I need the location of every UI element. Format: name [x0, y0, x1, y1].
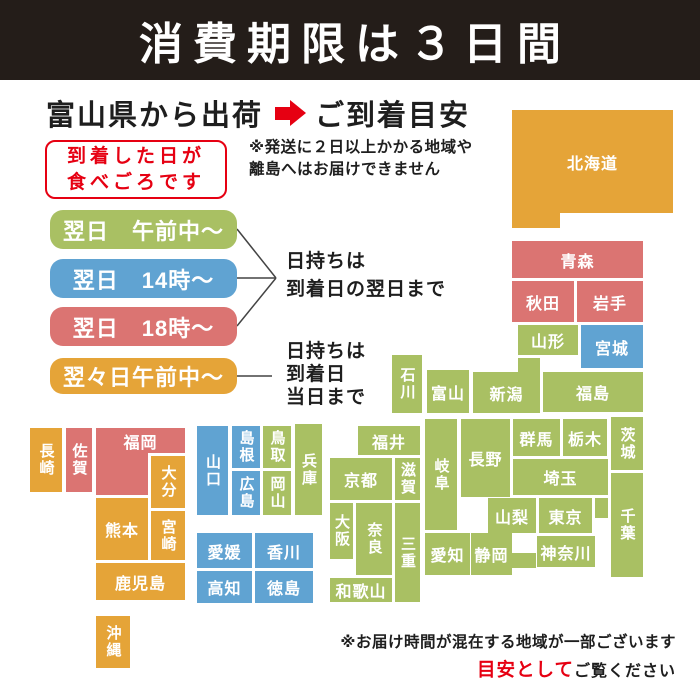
map-pref-niigata: 新潟 [473, 372, 540, 413]
map-pref-label: 愛知 [430, 542, 464, 566]
map-pref-label: 新潟 [489, 381, 523, 405]
map-pref-aichi: 愛知 [425, 533, 470, 575]
map-pref-label: 島根 [236, 430, 257, 464]
japan-map: 北海道青森秋田岩手山形宮城新潟福島富山石川福井岐阜長野群馬栃木茨城埼玉山梨東京千… [0, 0, 700, 700]
map-pref-label: 和歌山 [335, 578, 386, 602]
map-pref-label: 滋賀 [397, 462, 418, 496]
map-pref-hiroshima: 広島 [232, 471, 260, 515]
map-pref-iwate: 岩手 [577, 281, 643, 322]
map-pref-label: 石川 [397, 367, 418, 401]
map-pref-fukui: 福井 [358, 426, 420, 455]
map-pref-chiba: 千葉 [611, 473, 643, 577]
map-pref-miyazaki: 宮崎 [151, 511, 185, 560]
map-pref-kagawa: 香川 [255, 533, 313, 568]
map-pref-yamaguchi: 山口 [197, 426, 228, 515]
map-pref-label: 北海道 [567, 150, 618, 174]
map-pref-ishikawa: 石川 [392, 355, 422, 413]
map-pref-yamanashi: 山梨 [488, 498, 536, 533]
map-pref-shizuoka: 静岡 [471, 533, 512, 575]
map-pref-mie: 三重 [395, 503, 420, 602]
map-pref-label: 佐賀 [69, 443, 90, 477]
delivery-infographic: 消費期限は３日間 富山県から出荷 ご到着目安 到着した日が 食べごろです ※発送… [0, 0, 700, 700]
map-pref-hokkaido-tab [512, 211, 560, 228]
map-pref-label: 山梨 [495, 504, 529, 528]
map-pref-label: 富山 [431, 380, 465, 404]
map-pref-label: 兵庫 [298, 453, 319, 487]
map-pref-label: 高知 [207, 575, 241, 599]
map-pref-wakayama: 和歌山 [330, 578, 392, 602]
footer-guideline-note: 目安としてご覧ください [340, 656, 676, 682]
map-pref-tokyo: 東京 [539, 498, 592, 533]
map-pref-kumamoto: 熊本 [96, 498, 148, 560]
map-pref-label: 愛媛 [207, 539, 241, 563]
map-pref-label: 茨城 [617, 427, 638, 461]
map-pref-label: 熊本 [105, 517, 139, 541]
map-pref-tokyo-ext [595, 498, 608, 518]
map-pref-label: 秋田 [526, 290, 560, 314]
map-pref-saga: 佐賀 [66, 428, 92, 492]
map-pref-label: 長崎 [36, 443, 57, 477]
map-pref-label: 福井 [372, 429, 406, 453]
map-pref-label: 沖縄 [103, 625, 124, 659]
footer-mixed-area-note: ※お届け時間が混在する地域が一部ございます [340, 630, 676, 652]
map-pref-label: 宮崎 [158, 519, 179, 553]
map-pref-label: 岐阜 [431, 458, 452, 492]
map-pref-ehime: 愛媛 [197, 533, 252, 568]
map-pref-label: 栃木 [568, 426, 602, 450]
map-pref-label: 福島 [576, 380, 610, 404]
map-pref-fukushima: 福島 [543, 372, 643, 412]
map-pref-label: 静岡 [474, 542, 508, 566]
map-pref-label: 鳥取 [267, 430, 288, 464]
map-pref-label: 香川 [267, 539, 301, 563]
map-pref-label: 岩手 [593, 290, 627, 314]
map-pref-gifu: 岐阜 [425, 419, 457, 530]
map-pref-label: 神奈川 [540, 540, 591, 564]
footer-notes: ※お届け時間が混在する地域が一部ございます 目安としてご覧ください [340, 630, 676, 682]
map-pref-osaka: 大阪 [330, 503, 353, 559]
map-pref-saitama: 埼玉 [513, 459, 608, 495]
footer-guideline-black: ご覧ください [574, 663, 676, 680]
map-pref-akita: 秋田 [512, 281, 574, 322]
map-pref-toyama: 富山 [427, 370, 469, 413]
map-pref-tokushima: 徳島 [255, 571, 313, 603]
map-pref-label: 三重 [397, 536, 418, 570]
map-pref-label: 徳島 [267, 575, 301, 599]
map-pref-kyoto: 京都 [330, 458, 392, 500]
map-pref-tottori: 鳥取 [263, 426, 291, 468]
footer-guideline-red: 目安として [477, 659, 574, 680]
map-pref-kanagawa: 神奈川 [537, 536, 595, 567]
map-pref-shiga: 滋賀 [395, 458, 420, 500]
map-pref-kagoshima: 鹿児島 [96, 563, 185, 600]
map-pref-okinawa: 沖縄 [96, 616, 130, 668]
map-pref-label: 埼玉 [543, 465, 577, 489]
map-pref-nara: 奈良 [356, 503, 392, 575]
map-pref-ibaraki: 茨城 [611, 417, 643, 470]
map-pref-label: 大阪 [331, 514, 352, 548]
map-pref-label: 宮城 [595, 335, 629, 359]
map-pref-miyagi: 宮城 [581, 325, 643, 368]
map-pref-label: 鹿児島 [115, 570, 166, 594]
map-pref-okayama: 岡山 [263, 471, 291, 515]
map-pref-label: 大分 [158, 465, 179, 499]
map-pref-aomori: 青森 [512, 241, 643, 278]
map-pref-label: 東京 [548, 504, 582, 528]
map-pref-oita: 大分 [151, 456, 185, 508]
map-pref-nagano: 長野 [461, 419, 510, 497]
map-pref-label: 青森 [560, 248, 594, 272]
map-pref-label: 広島 [236, 476, 257, 510]
map-pref-yamagata: 山形 [518, 325, 578, 355]
map-pref-label: 奈良 [364, 522, 385, 556]
map-pref-label: 山形 [531, 328, 565, 352]
map-pref-gunma: 群馬 [513, 419, 560, 456]
map-pref-label: 岡山 [267, 476, 288, 510]
map-pref-nagasaki: 長崎 [30, 428, 62, 492]
map-pref-label: 福岡 [123, 429, 157, 453]
map-pref-label: 長野 [468, 446, 502, 470]
map-pref-hokkaido: 北海道 [512, 110, 673, 213]
map-pref-shizuoka-ext [512, 553, 536, 568]
map-pref-tochigi: 栃木 [563, 419, 607, 456]
map-pref-label: 千葉 [617, 508, 638, 542]
map-pref-kochi: 高知 [197, 571, 252, 603]
map-pref-shimane: 島根 [232, 426, 260, 468]
map-pref-label: 群馬 [519, 426, 553, 450]
map-pref-label: 山口 [202, 454, 223, 488]
map-pref-fukuoka: 福岡 [96, 428, 185, 453]
map-pref-hyogo: 兵庫 [295, 424, 322, 515]
map-pref-label: 京都 [344, 467, 378, 491]
